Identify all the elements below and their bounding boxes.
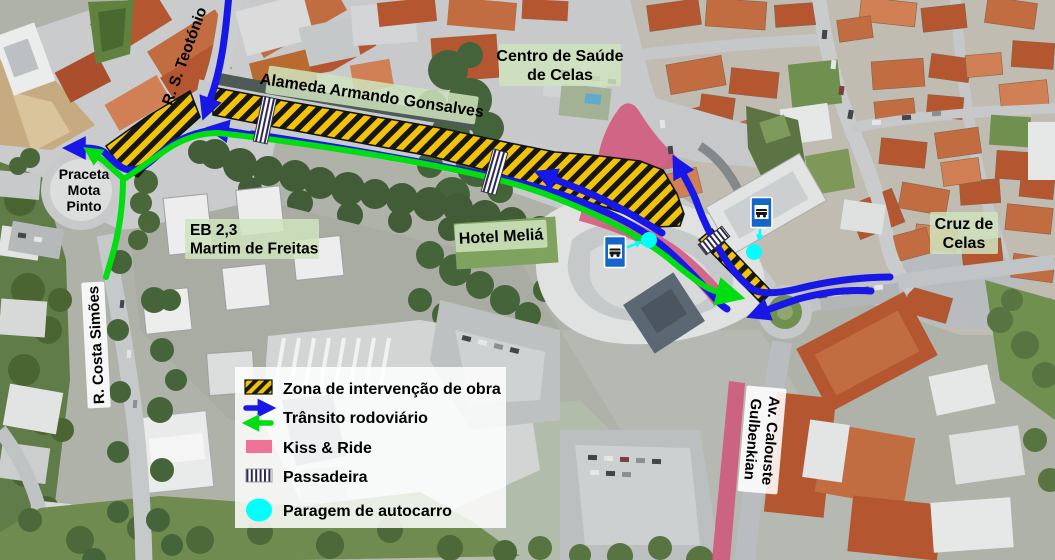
svg-text:Pinto: Pinto [67,198,102,214]
svg-text:Passadeira: Passadeira [283,469,368,486]
svg-text:Martim de Freitas: Martim de Freitas [190,241,318,258]
svg-text:de Celas: de Celas [527,67,593,84]
svg-text:Zona de intervenção de obra: Zona de intervenção de obra [283,381,501,398]
svg-text:Celas: Celas [943,235,986,252]
svg-text:Mota: Mota [68,182,101,198]
svg-text:Kiss & Ride: Kiss & Ride [283,440,372,457]
svg-text:Cruz de: Cruz de [935,216,994,233]
svg-text:Praceta: Praceta [59,166,110,182]
svg-text:EB 2,3: EB 2,3 [190,222,238,239]
svg-text:Paragem de autocarro: Paragem de autocarro [283,503,452,520]
svg-text:Trânsito rodoviário: Trânsito rodoviário [283,410,428,427]
svg-text:Centro de Saúde: Centro de Saúde [496,48,623,65]
